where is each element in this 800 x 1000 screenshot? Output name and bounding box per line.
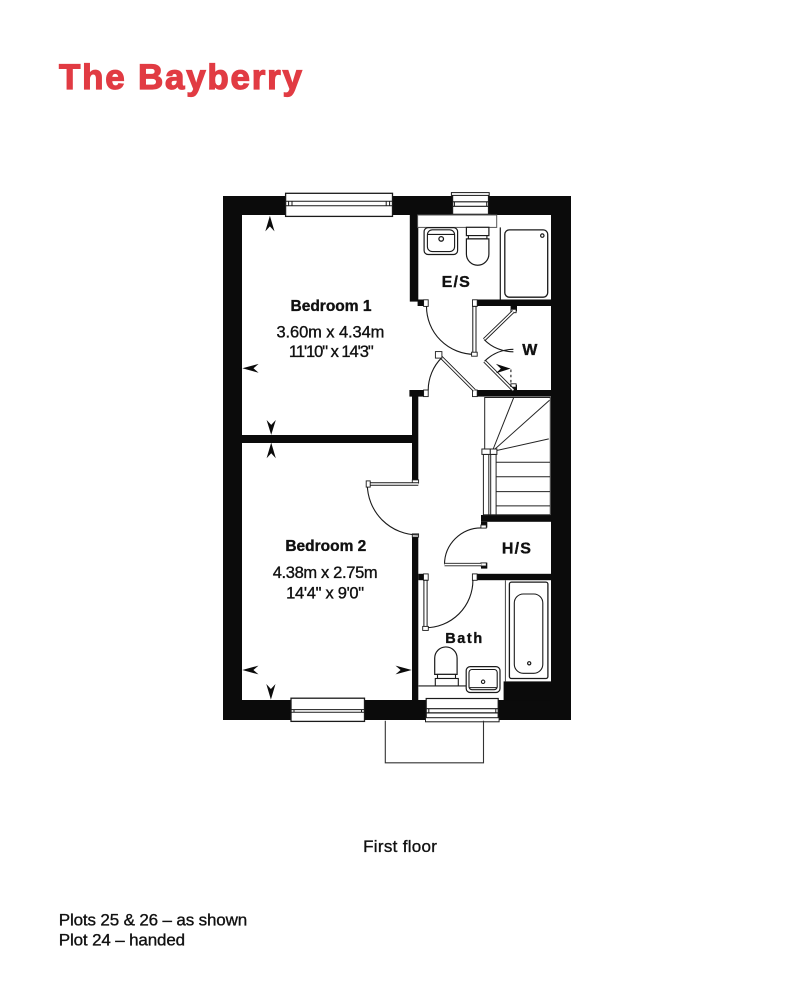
svg-text:4.38m x 2.75m: 4.38m x 2.75m: [273, 564, 378, 582]
svg-text:3.60m x 4.34m: 3.60m x 4.34m: [276, 323, 384, 341]
svg-text:First floor: First floor: [363, 837, 437, 856]
svg-text:Bath: Bath: [445, 631, 484, 647]
svg-text:E/S: E/S: [442, 274, 471, 291]
svg-text:The Bayberry: The Bayberry: [59, 58, 304, 97]
svg-text:Bedroom 1: Bedroom 1: [291, 298, 372, 315]
svg-text:Plot 24 – handed: Plot 24 – handed: [59, 931, 185, 950]
svg-text:W: W: [522, 342, 538, 359]
svg-text:11'10" x 14'3": 11'10" x 14'3": [289, 343, 374, 361]
svg-text:14'4" x 9'0": 14'4" x 9'0": [286, 584, 364, 602]
svg-text:Plots 25 & 26 – as shown: Plots 25 & 26 – as shown: [59, 911, 247, 930]
svg-text:Bedroom 2: Bedroom 2: [285, 538, 366, 555]
svg-text:H/S: H/S: [502, 541, 532, 558]
